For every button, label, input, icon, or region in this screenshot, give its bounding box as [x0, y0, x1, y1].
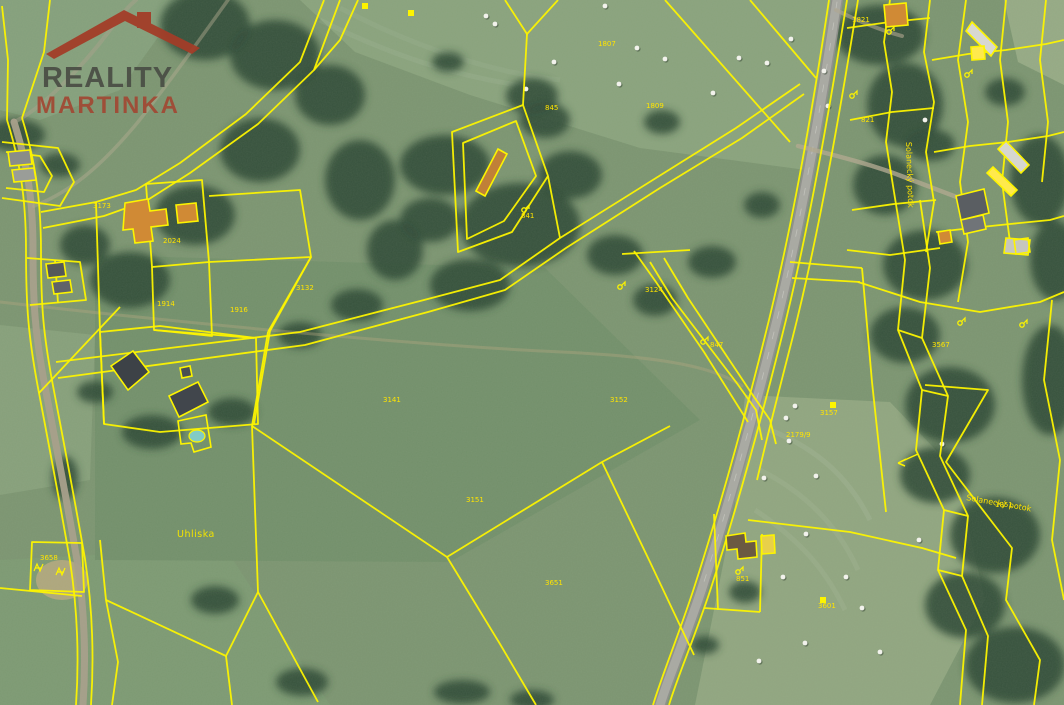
parcel-number-label: 847 — [710, 341, 723, 349]
building-footprint — [176, 203, 198, 223]
parcel-number-label: 1914 — [157, 300, 175, 308]
parcel-number-label: 3157 — [820, 409, 838, 417]
place-label: Uhliska — [177, 529, 215, 540]
parcel-number-label: 3124 — [645, 286, 663, 294]
grass-texture — [0, 0, 1064, 705]
parcel-number-label: 1807 — [598, 40, 616, 48]
swimming-pool — [189, 430, 205, 442]
parcel-number-label: 1821 — [852, 16, 870, 24]
parcel-number-label: 2024 — [163, 237, 181, 245]
parcel-number-label: 821 — [861, 116, 874, 124]
map-symbol-square — [408, 10, 414, 16]
parcel-number-label: 841 — [521, 212, 534, 220]
building-footprint — [52, 280, 72, 294]
building-footprint — [971, 46, 985, 60]
building-footprint — [180, 366, 192, 378]
parcel-number-label: 1809 — [646, 102, 664, 110]
parcel-number-label: 3141 — [383, 396, 401, 404]
parcel-number-label: 2179/9 — [786, 431, 811, 439]
parcel-number-label: 851 — [736, 575, 749, 583]
parcel-number-label: 3651 — [545, 579, 563, 587]
parcel-number-label: 3151 — [466, 496, 484, 504]
aerial-cadastral-map: UhliskaSolanecký potokSolanecký potok180… — [0, 0, 1064, 705]
map-symbol-square — [362, 3, 368, 9]
parcel-number-label: 1916 — [230, 306, 248, 314]
parcel-number-label: 3658 — [40, 554, 58, 562]
building-footprint — [8, 150, 32, 166]
parcel-number-label: 845 — [545, 104, 558, 112]
building-footprint — [46, 262, 66, 278]
building-footprint — [761, 535, 775, 554]
building-footprint — [938, 230, 952, 244]
parcel-number-label: 3152 — [610, 396, 628, 404]
map-viewport: UhliskaSolanecký potokSolanecký potok180… — [0, 0, 1064, 705]
parcel-number-label: 3601 — [818, 602, 836, 610]
building-footprint — [12, 168, 36, 182]
parcel-number-label: 1851 — [995, 501, 1013, 509]
parcel-number-label: 3567 — [932, 341, 950, 349]
building-footprint — [884, 3, 908, 27]
map-symbol-square — [830, 402, 836, 408]
parcel-number-label: 3132 — [296, 284, 314, 292]
parcel-number-label: 3173 — [93, 202, 111, 210]
